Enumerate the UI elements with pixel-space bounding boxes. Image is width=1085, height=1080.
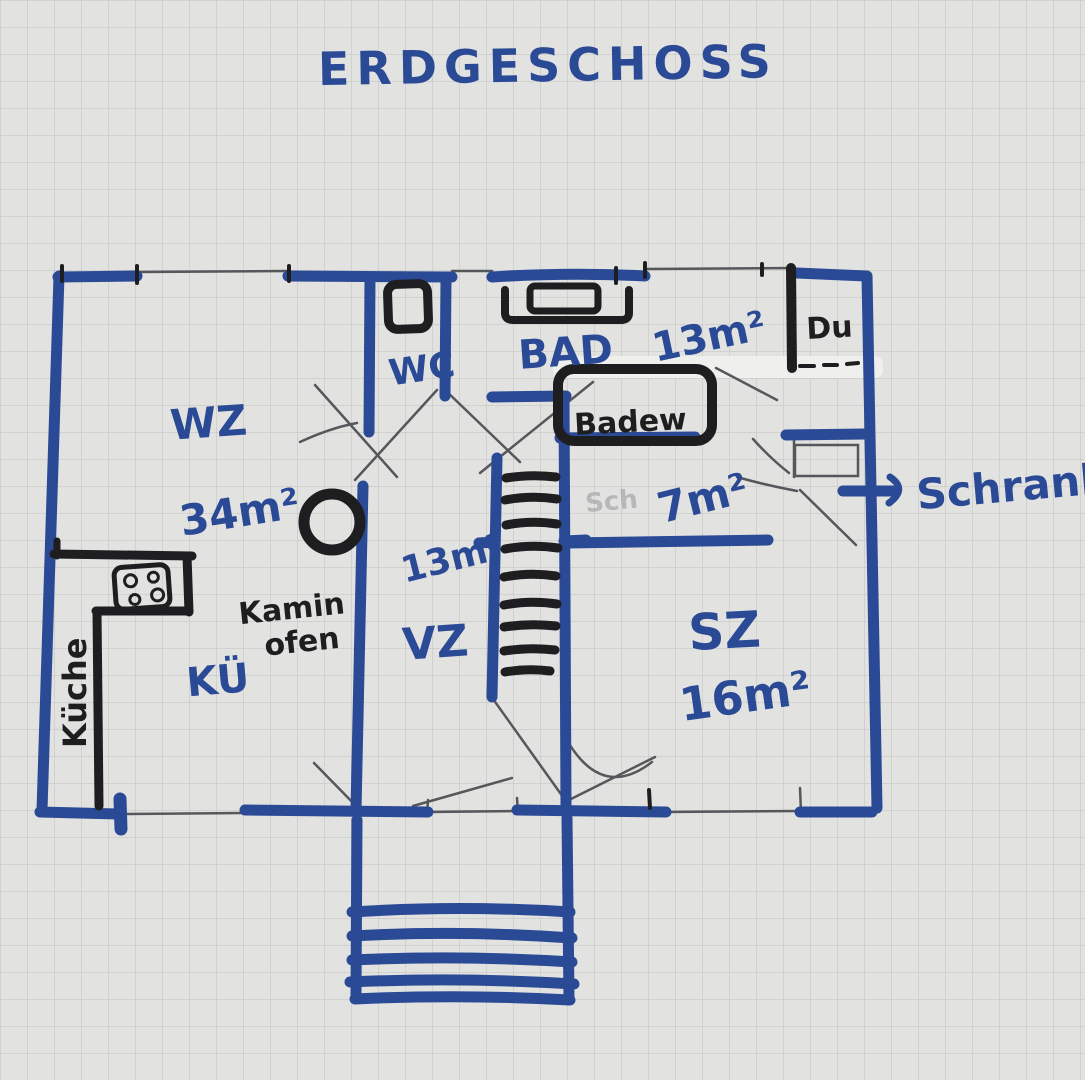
room-label-bath: BAD (517, 326, 615, 378)
floor-plan-sketch: ERDGESCHOSS WZ 34m² KÜ Küche Kamin ofen … (0, 0, 1085, 1080)
wall-segment (492, 274, 645, 277)
step (352, 958, 572, 962)
stair-step (505, 670, 550, 672)
room-label-shower: Du (805, 310, 853, 347)
stair-step (504, 625, 556, 627)
floor-plan-canvas: ERDGESCHOSS WZ 34m² KÜ Küche Kamin ofen … (0, 0, 1085, 1080)
room-label-living-room: WZ (169, 395, 249, 449)
door-post (120, 799, 121, 829)
wall-segment (797, 273, 866, 276)
graph-paper-grid (0, 0, 1085, 1080)
room-label-bedroom: SZ (687, 600, 762, 662)
wall-segment-center (564, 396, 566, 806)
window-line (666, 811, 800, 812)
window-line (137, 271, 288, 272)
label-kitchen-counter: Küche (56, 638, 94, 748)
counter-edge (54, 554, 192, 556)
wall-segment (517, 810, 666, 812)
room-label-kitchen: KÜ (184, 653, 251, 706)
step (350, 980, 574, 984)
stair-step (504, 602, 557, 605)
dash (847, 363, 858, 364)
counter-edge (97, 611, 99, 806)
wall-segment (58, 276, 137, 277)
wall-segment-wc-left (369, 277, 370, 432)
wall-segment (40, 812, 118, 814)
page-title: ERDGESCHOSS (317, 34, 778, 96)
room-label-hall: VZ (401, 615, 470, 670)
step (352, 909, 570, 913)
wall-segment-bedroom-top (566, 540, 768, 543)
stair-step (506, 522, 557, 525)
stair-step (505, 546, 558, 549)
wall-segment-shower-bottom (786, 434, 866, 435)
label-bathtub: Badew (573, 402, 687, 443)
faint-pencil-note: Sch (584, 485, 639, 519)
stair-step (504, 574, 556, 577)
window-line (645, 268, 795, 269)
step (352, 933, 572, 938)
stair-step (506, 476, 556, 478)
stair-step (505, 497, 557, 500)
stair-wall-left (492, 458, 497, 697)
entrance-threshold-line (428, 811, 517, 812)
counter-edge (187, 556, 189, 612)
window-line (120, 813, 245, 814)
step (355, 997, 570, 1000)
tick (649, 790, 650, 808)
wall-segment (245, 810, 428, 812)
shower-divider (791, 268, 792, 368)
stair-step (504, 649, 555, 651)
